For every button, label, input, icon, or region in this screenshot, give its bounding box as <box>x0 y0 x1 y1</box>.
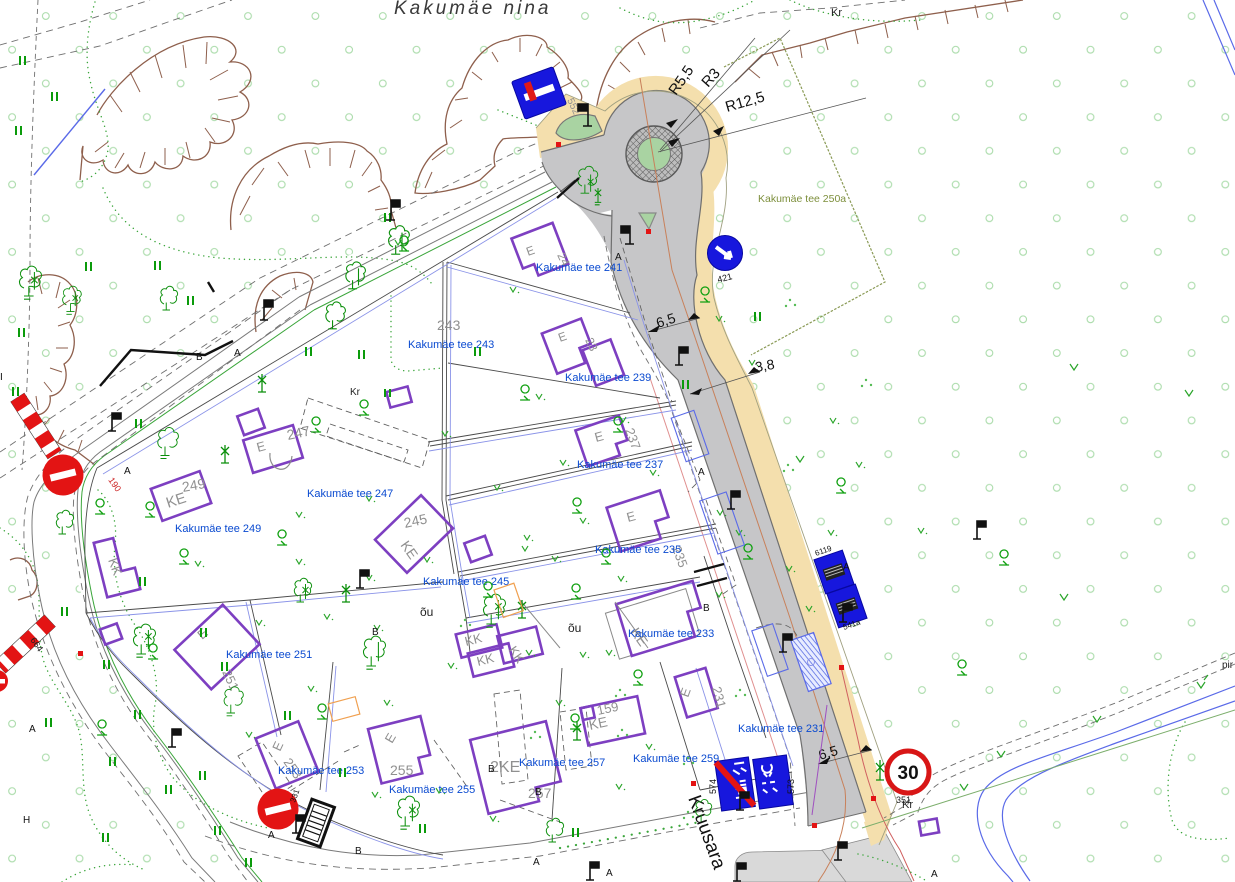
svg-text:H: H <box>23 815 30 826</box>
svg-text:Kakumäe tee 243: Kakumäe tee 243 <box>408 339 494 351</box>
svg-text:30: 30 <box>898 763 919 784</box>
svg-text:243: 243 <box>437 317 461 333</box>
svg-text:A: A <box>606 868 613 879</box>
svg-text:Kakumäe tee 241: Kakumäe tee 241 <box>536 262 622 274</box>
svg-text:A: A <box>124 466 131 477</box>
svg-text:255: 255 <box>390 762 414 778</box>
svg-text:õu: õu <box>420 605 433 619</box>
svg-text:Kakumäe tee 249: Kakumäe tee 249 <box>175 523 261 535</box>
svg-text:573: 573 <box>786 779 796 794</box>
svg-text:B: B <box>372 627 379 638</box>
svg-text:õu: õu <box>568 621 581 635</box>
svg-text:Kakumäe tee 237: Kakumäe tee 237 <box>577 459 663 471</box>
svg-text:Kr: Kr <box>831 7 842 19</box>
svg-text:Kakumäe tee 239: Kakumäe tee 239 <box>565 372 651 384</box>
svg-text:A: A <box>698 467 705 478</box>
svg-text:A: A <box>843 562 850 573</box>
svg-text:Kakumäe tee 245: Kakumäe tee 245 <box>423 576 509 588</box>
svg-text:A: A <box>533 857 540 868</box>
svg-text:Kakumäe tee 251: Kakumäe tee 251 <box>226 649 312 661</box>
svg-text:574: 574 <box>708 779 718 794</box>
svg-text:A: A <box>29 724 36 735</box>
svg-text:B: B <box>535 787 542 798</box>
svg-text:A: A <box>615 252 622 263</box>
svg-text:Kakumäe tee 253: Kakumäe tee 253 <box>278 765 364 777</box>
svg-text:Kakumäe tee 247: Kakumäe tee 247 <box>307 488 393 500</box>
svg-text:Kakumäe tee 257: Kakumäe tee 257 <box>519 757 605 769</box>
svg-text:Kakumäe tee 233: Kakumäe tee 233 <box>628 628 714 640</box>
svg-text:Kakumäe nina: Kakumäe nina <box>394 0 551 19</box>
svg-text:Kakumäe tee 250a: Kakumäe tee 250a <box>758 193 846 205</box>
svg-text:B: B <box>703 603 710 614</box>
svg-text:Kakumäe tee 259: Kakumäe tee 259 <box>633 753 719 765</box>
svg-text:A: A <box>268 830 275 841</box>
svg-text:A: A <box>234 348 241 359</box>
svg-text:Kakumäe tee 231: Kakumäe tee 231 <box>738 723 824 735</box>
svg-text:B: B <box>488 764 495 775</box>
svg-text:I: I <box>0 372 3 383</box>
svg-text:B: B <box>355 846 362 857</box>
svg-text:Kakumäe tee 255: Kakumäe tee 255 <box>389 784 475 796</box>
svg-text:Kr: Kr <box>350 387 361 398</box>
svg-text:A: A <box>931 869 938 880</box>
svg-text:351: 351 <box>896 795 911 805</box>
